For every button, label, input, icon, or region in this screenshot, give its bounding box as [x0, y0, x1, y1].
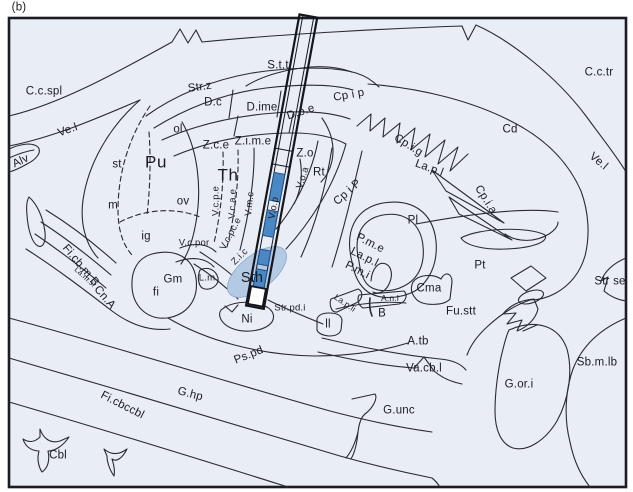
label-ol: ol — [173, 124, 182, 136]
label-ll: ll — [325, 319, 331, 331]
label-sbmlb: Sb.m.lb — [577, 357, 617, 369]
label-fustt: Fu.stt — [446, 306, 476, 318]
label-anl: A.n.l — [381, 294, 399, 303]
label-ov: ov — [177, 196, 190, 208]
figure-frame — [9, 18, 626, 487]
label-dime: D.ime — [246, 102, 277, 114]
label-cbl: Cbl — [49, 450, 67, 462]
label-dc: D.c — [204, 97, 222, 109]
label-zce: Z.c.e — [203, 140, 230, 152]
label-m: m — [108, 200, 118, 212]
label-zime: Z.i.m.e — [235, 136, 272, 148]
label-atb: A.tb — [407, 336, 428, 348]
label-strpdi: Str.pd.i — [274, 303, 305, 313]
label-vcae: V.c.a.e — [228, 189, 239, 219]
label-cctr: C.c.tr — [585, 67, 614, 79]
electrode-contact-3 — [257, 249, 271, 266]
label-b-area: B — [378, 308, 386, 320]
label-sth: Sth — [241, 271, 263, 286]
panel-label: (b) — [12, 2, 27, 14]
label-th: Th — [217, 167, 238, 184]
label-gm: Gm — [164, 274, 183, 286]
label-pt: Pt — [474, 260, 485, 272]
label-fi: fi — [153, 287, 159, 299]
label-st: st — [112, 159, 121, 171]
label-ni: Ni — [241, 314, 252, 326]
label-gori: G.or.i — [505, 379, 534, 391]
label-cma: Cma — [417, 283, 442, 295]
label-ig: ig — [141, 231, 150, 243]
label-gunc: G.unc — [383, 405, 415, 417]
label-pu: Pu — [145, 154, 167, 171]
atlas-diagram — [0, 0, 633, 492]
atlas-figure: (b) C.c.spl Ve.l Alv Str.z D.c D.ime D.o… — [0, 0, 633, 492]
label-rt: Rt — [313, 167, 325, 179]
label-vacbl: Va.cb.l — [406, 363, 442, 375]
label-cd: Cd — [502, 124, 517, 136]
electrode-tip — [248, 286, 266, 306]
label-ccspl: C.c.spl — [26, 86, 63, 98]
label-vcpe: V.c.p.e — [211, 186, 221, 216]
label-zo: Z.o — [296, 148, 313, 160]
label-strse: Str se — [594, 276, 625, 288]
label-lm: L.m — [199, 273, 215, 283]
label-vmc: V.m.c — [244, 191, 256, 216]
label-vcpor: V.c.por — [179, 238, 210, 248]
label-pl: Pl — [408, 215, 419, 227]
label-stt: S.t.t — [267, 60, 288, 72]
